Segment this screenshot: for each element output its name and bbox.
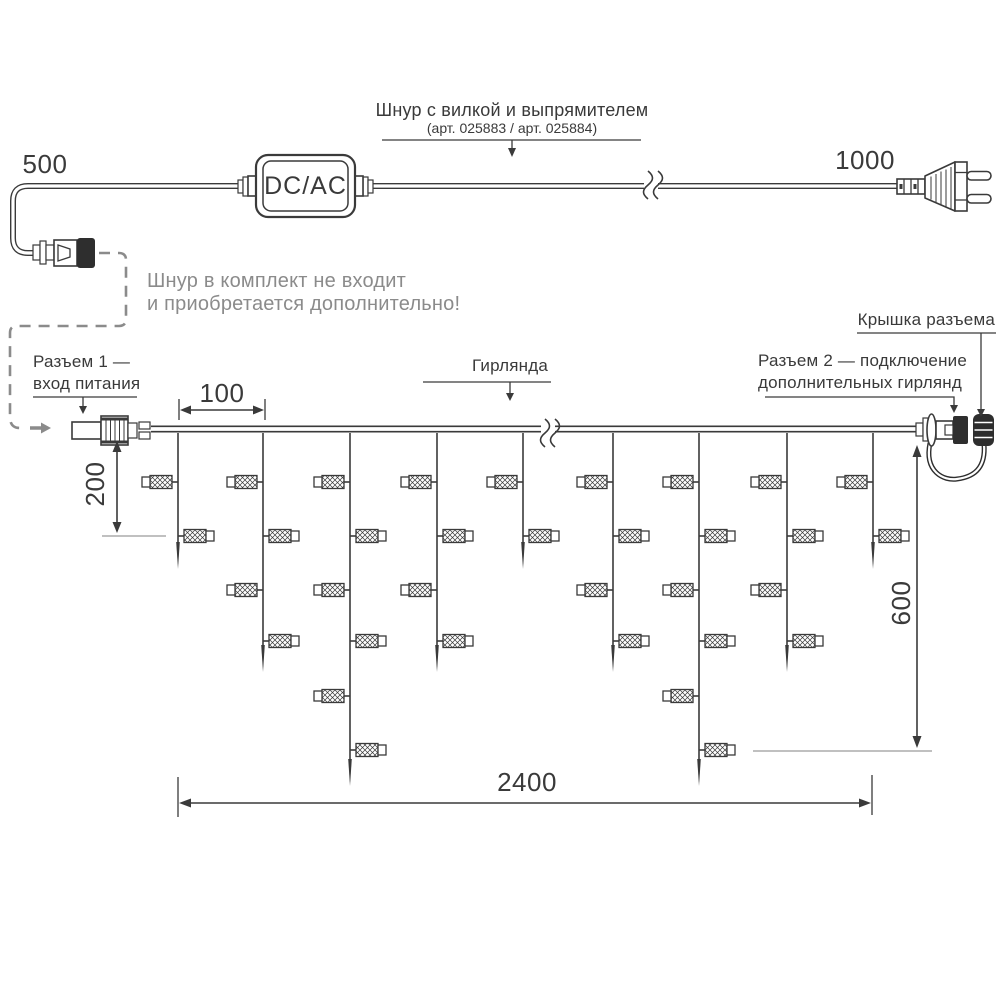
- bulb-icon: [671, 584, 693, 597]
- garland-drop: [314, 433, 386, 786]
- bulb-icon: [879, 530, 901, 543]
- bulb-icon: [619, 635, 641, 648]
- garland-label: Гирлянда: [430, 355, 590, 376]
- bulb-icon: [793, 530, 815, 543]
- note-line-2: и приобретается дополнительно!: [147, 292, 460, 317]
- bulb-icon: [585, 476, 607, 489]
- connector1-label-1: Разъем 1 —: [33, 351, 130, 372]
- bulb-cap-icon: [227, 477, 235, 487]
- connector-1-icon: [72, 416, 150, 445]
- bulb-cap-icon: [751, 585, 759, 595]
- bulb-cap-icon: [551, 531, 559, 541]
- bulb-icon: [671, 476, 693, 489]
- connector1-label-2: вход питания: [33, 373, 140, 394]
- bulb-cap-icon: [206, 531, 214, 541]
- bulb-cap-icon: [727, 745, 735, 755]
- bulb-icon: [759, 584, 781, 597]
- connector2-label-1: Разъем 2 — подключение: [758, 350, 958, 371]
- bulb-cap-icon: [727, 531, 735, 541]
- bulb-icon: [585, 584, 607, 597]
- bulb-icon: [529, 530, 551, 543]
- dashed-arrowhead: [41, 423, 51, 434]
- power-plug-icon: [897, 162, 991, 211]
- bulb-cap-icon: [465, 636, 473, 646]
- connector2-label-2: дополнительных гирлянд: [758, 372, 958, 393]
- bulb-icon: [705, 530, 727, 543]
- leader-cord-label: [382, 140, 641, 157]
- bulb-cap-icon: [641, 531, 649, 541]
- bulb-icon: [150, 476, 172, 489]
- bulb-cap-icon: [314, 691, 322, 701]
- garland-wire: [151, 419, 918, 447]
- bulb-cap-icon: [663, 691, 671, 701]
- bulb-cap-icon: [577, 477, 585, 487]
- leader-garland: [423, 382, 551, 401]
- bulb-icon: [845, 476, 867, 489]
- garland-drop: [142, 433, 214, 569]
- bulb-cap-icon: [663, 585, 671, 595]
- bulb-icon: [705, 744, 727, 757]
- bulb-cap-icon: [401, 585, 409, 595]
- power-cord: [13, 171, 897, 253]
- adapter-label: DC/AC: [256, 155, 355, 217]
- diagram-canvas: 500 1000 DC/AC Шнур с вилкой и выпрямите…: [0, 0, 1000, 1000]
- bulb-icon: [443, 530, 465, 543]
- bulb-cap-icon: [314, 477, 322, 487]
- bulb-cap-icon: [291, 531, 299, 541]
- bulb-cap-icon: [901, 531, 909, 541]
- dim-label-200: 200: [82, 449, 108, 519]
- bulb-cap-icon: [378, 745, 386, 755]
- bulb-cap-icon: [815, 636, 823, 646]
- bulb-icon: [409, 584, 431, 597]
- dim-label-500: 500: [10, 148, 80, 181]
- garland-drop: [487, 433, 559, 569]
- dim-label-600: 600: [888, 568, 914, 638]
- bulb-icon: [356, 530, 378, 543]
- bulb-icon: [235, 584, 257, 597]
- dim-label-1000: 1000: [825, 144, 905, 177]
- dim-label-2400: 2400: [462, 766, 592, 799]
- bulb-icon: [705, 635, 727, 648]
- garland-drop: [837, 433, 909, 569]
- bulb-cap-icon: [663, 477, 671, 487]
- bulb-icon: [269, 530, 291, 543]
- bulb-cap-icon: [142, 477, 150, 487]
- bulb-icon: [671, 690, 693, 703]
- garland-drop: [751, 433, 823, 672]
- bulb-cap-icon: [378, 636, 386, 646]
- bulb-cap-icon: [465, 531, 473, 541]
- bulb-icon: [793, 635, 815, 648]
- bulb-icon: [356, 635, 378, 648]
- garland-drop: [577, 433, 649, 672]
- bulb-cap-icon: [227, 585, 235, 595]
- garland-drop: [401, 433, 473, 672]
- bulb-cap-icon: [577, 585, 585, 595]
- bulb-cap-icon: [837, 477, 845, 487]
- bulb-cap-icon: [378, 531, 386, 541]
- dim-label-100: 100: [187, 377, 257, 410]
- bulb-cap-icon: [291, 636, 299, 646]
- bulb-icon: [235, 476, 257, 489]
- bulb-icon: [619, 530, 641, 543]
- bulb-icon: [184, 530, 206, 543]
- bulb-cap-icon: [487, 477, 495, 487]
- cord-title: Шнур с вилкой и выпрямителем: [362, 99, 662, 122]
- leader-connector-1: [33, 397, 137, 414]
- note-line-1: Шнур в комплект не входит: [147, 269, 406, 294]
- bulb-cap-icon: [641, 636, 649, 646]
- garland-drop: [227, 433, 299, 672]
- bulb-cap-icon: [401, 477, 409, 487]
- bulb-icon: [322, 476, 344, 489]
- bulb-icon: [759, 476, 781, 489]
- leader-connector-2: [765, 397, 958, 413]
- bulb-icon: [356, 744, 378, 757]
- bulb-cap-icon: [314, 585, 322, 595]
- cord-connector-icon: [33, 238, 95, 268]
- bulb-icon: [443, 635, 465, 648]
- cord-article: (арт. 025883 / арт. 025884): [362, 120, 662, 138]
- dashed-connection-path: [10, 253, 126, 434]
- garland-drop: [663, 433, 735, 786]
- bulb-cap-icon: [815, 531, 823, 541]
- bulb-icon: [269, 635, 291, 648]
- connector-cap-icon: [973, 414, 994, 446]
- garland-drops: [142, 433, 909, 786]
- bulb-cap-icon: [727, 636, 735, 646]
- bulb-icon: [495, 476, 517, 489]
- bulb-icon: [409, 476, 431, 489]
- bulb-cap-icon: [751, 477, 759, 487]
- cap-label: Крышка разъема: [845, 309, 995, 330]
- bulb-icon: [322, 690, 344, 703]
- bulb-icon: [322, 584, 344, 597]
